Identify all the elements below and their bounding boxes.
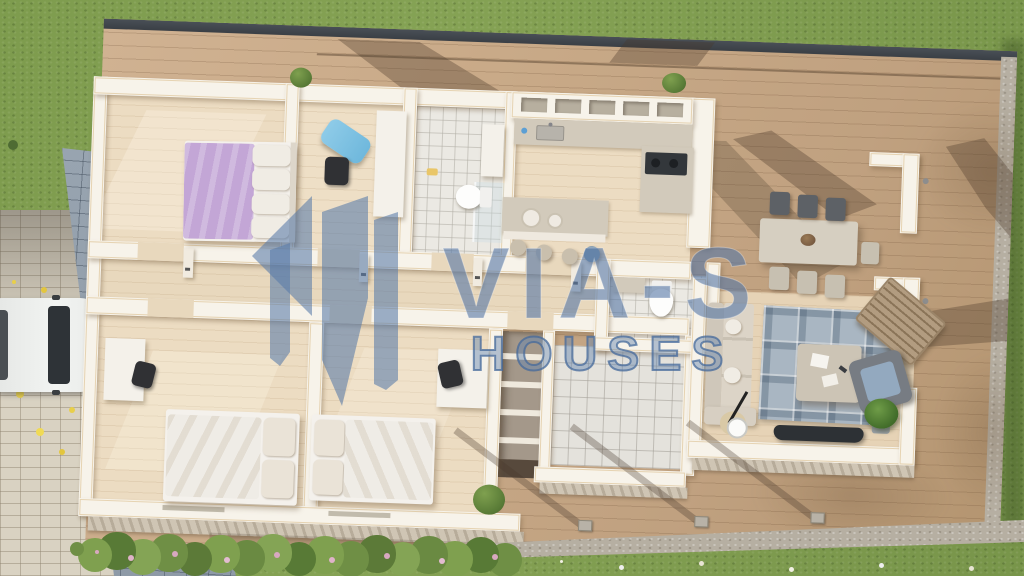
yellow-flowers	[12, 280, 16, 284]
dining-chair	[825, 198, 846, 222]
dining-chair	[797, 195, 818, 219]
bath1-toilet	[455, 183, 492, 210]
house-platform	[69, 18, 1017, 573]
door-opening	[137, 242, 184, 262]
car-mirror-top	[52, 295, 60, 300]
toilet-tank	[479, 187, 492, 207]
door-handle	[573, 282, 578, 285]
door-opening	[317, 248, 360, 267]
door-handle	[185, 268, 190, 271]
shrub-cluster-left	[8, 140, 18, 150]
dining-chair	[769, 267, 790, 291]
master-bed	[183, 141, 297, 243]
cabinet-inset	[589, 100, 615, 115]
dining-chair	[797, 271, 818, 295]
door-opening	[147, 298, 194, 318]
hedge-row	[70, 542, 84, 556]
car-mirror-bottom	[52, 390, 60, 395]
bath2-vanity	[613, 277, 646, 293]
car-rear-window	[0, 310, 8, 380]
kitchen-sink	[536, 125, 565, 141]
white-duvet	[165, 414, 262, 499]
deck-post	[694, 516, 708, 527]
pillow	[312, 459, 343, 495]
aerial-floorplan-render: VIA-S HOUSES	[0, 0, 1024, 576]
cooktop	[645, 152, 688, 175]
tv-screen	[773, 425, 863, 443]
pillow	[313, 419, 344, 456]
bath2-toilet	[648, 280, 675, 319]
dining-chair	[824, 275, 845, 299]
door-opening	[431, 252, 474, 271]
chimney-shadow-b	[609, 39, 715, 66]
remote	[839, 365, 848, 373]
towel-yellow	[427, 168, 438, 175]
dining-chair	[769, 192, 790, 216]
door-leaf	[359, 254, 369, 282]
toilet-bowl	[455, 184, 482, 209]
burner	[651, 158, 660, 167]
deck-post	[810, 512, 824, 523]
pillow	[251, 217, 289, 239]
dining-chair	[861, 242, 880, 265]
pillow	[252, 145, 290, 167]
wall-dining-l-v	[900, 153, 920, 234]
car-windshield	[48, 306, 70, 384]
door-handle	[361, 273, 366, 276]
purple-duvet	[183, 143, 255, 240]
paper	[821, 373, 838, 387]
pillow	[262, 418, 295, 457]
tree-shadow-deck-1	[911, 98, 1024, 244]
armchair-cushion	[859, 361, 901, 403]
cabinet-inset	[623, 101, 649, 116]
door-leaf	[473, 258, 483, 286]
bed3	[309, 414, 436, 504]
door-opening	[507, 311, 554, 331]
office-chair	[324, 157, 349, 186]
hedge-flowers-pink	[95, 550, 99, 554]
cabinet-inset	[555, 99, 581, 114]
deck-post	[578, 520, 592, 531]
room-bathroom-3	[550, 345, 686, 470]
door-handle	[475, 276, 480, 279]
door-leaf	[571, 261, 582, 291]
toilet-bowl	[649, 288, 674, 317]
pillow	[251, 194, 289, 215]
pillow	[252, 169, 290, 191]
cabinet-inset	[521, 98, 547, 113]
bed2	[163, 409, 300, 506]
burner	[669, 159, 678, 168]
door-opening	[329, 305, 372, 324]
grass-flowers-bottom	[560, 560, 563, 563]
paper	[810, 353, 829, 369]
office-desk	[373, 110, 407, 217]
door-leaf	[183, 248, 194, 278]
pillow	[261, 460, 294, 499]
bath1-vanity	[481, 124, 505, 177]
cabinet-inset	[657, 102, 683, 117]
white-duvet	[343, 419, 434, 500]
